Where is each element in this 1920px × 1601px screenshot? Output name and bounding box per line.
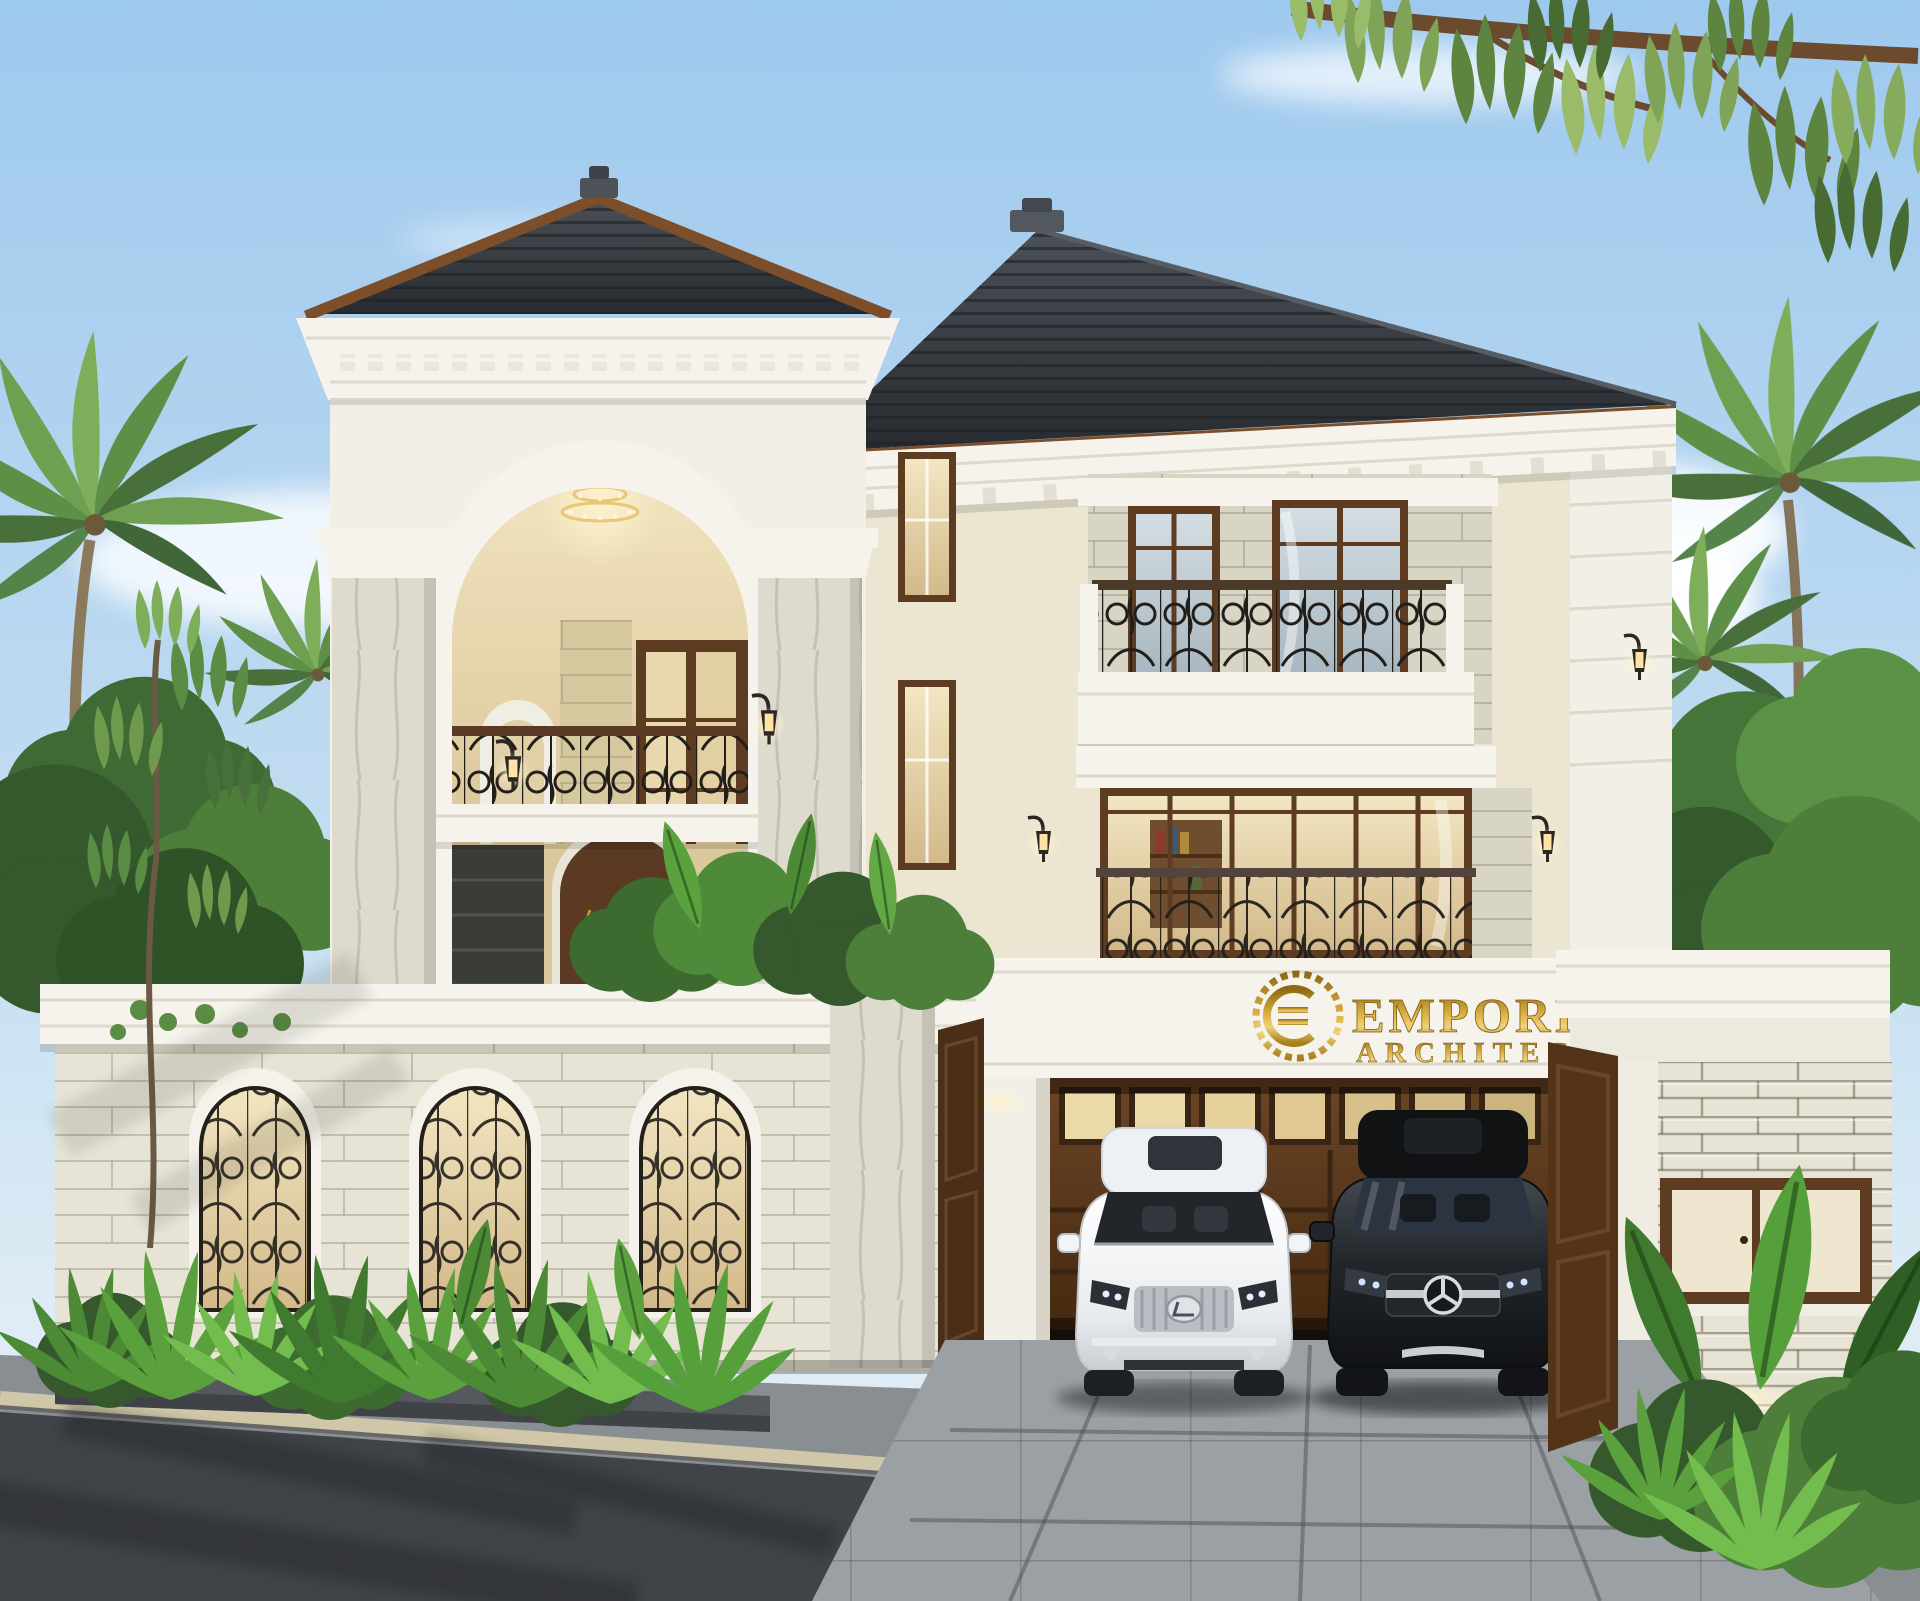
slot-window-lower — [898, 680, 956, 870]
wheel — [1084, 1370, 1134, 1396]
sunroof — [1404, 1118, 1482, 1154]
villa-render: EMPORIO ARCHITECT — [0, 0, 1920, 1601]
balcony-railing — [1100, 874, 1472, 958]
balcony-railing — [1096, 590, 1448, 672]
fence-arch-window — [629, 1068, 761, 1318]
mercedes-star-icon — [1425, 1277, 1461, 1313]
gate-pillar — [820, 962, 945, 1368]
windshield — [1094, 1192, 1274, 1244]
lintel-beam — [1076, 746, 1496, 788]
sunroof — [1148, 1136, 1222, 1170]
marble-pillar-left — [318, 528, 450, 1008]
wheel — [1234, 1370, 1284, 1396]
roof-finial — [580, 178, 618, 198]
wooden-gate-left — [938, 1018, 984, 1368]
window-1f-large — [1096, 788, 1476, 958]
wheel — [1336, 1368, 1388, 1396]
lexus-badge-icon — [1167, 1296, 1201, 1322]
wheel — [1498, 1368, 1550, 1396]
slot-window-upper — [898, 452, 956, 602]
balcony-ledge — [436, 804, 764, 842]
second-floor — [1078, 474, 1498, 752]
ridge-cap — [1010, 210, 1064, 232]
wooden-gate-right — [1548, 1042, 1618, 1452]
balcony-2f — [1078, 580, 1474, 752]
tower-cornice — [296, 318, 900, 405]
